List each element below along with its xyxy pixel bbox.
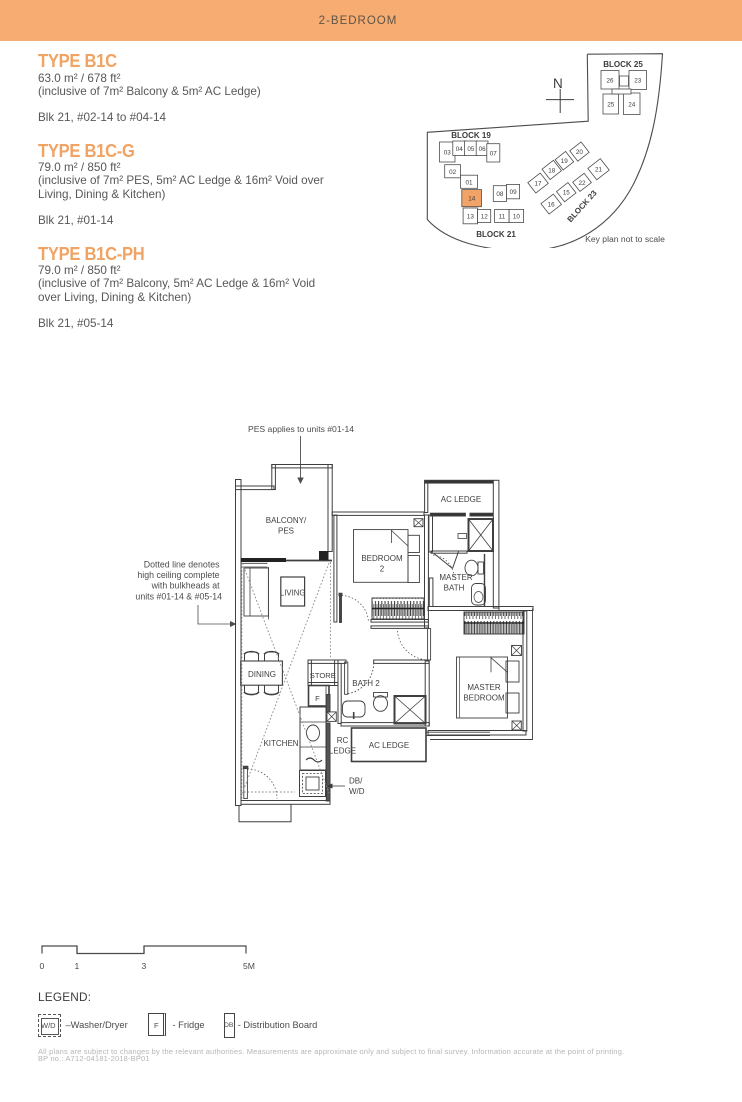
svg-text:AC LEDGE: AC LEDGE	[369, 741, 409, 750]
svg-text:01: 01	[465, 179, 473, 186]
svg-text:BEDROOM2: BEDROOM2	[361, 554, 403, 573]
svg-text:06: 06	[479, 146, 487, 153]
svg-text:DB/W/D: DB/W/D	[349, 777, 365, 797]
svg-text:07: 07	[490, 151, 498, 158]
svg-text:20: 20	[576, 149, 584, 156]
svg-text:3: 3	[142, 961, 147, 971]
svg-text:10: 10	[513, 213, 521, 220]
svg-text:03: 03	[444, 150, 452, 157]
svg-text:BLOCK 19: BLOCK 19	[451, 131, 491, 140]
svg-text:LIVING: LIVING	[280, 588, 306, 597]
svg-text:04: 04	[456, 146, 464, 153]
svg-text:09: 09	[510, 189, 518, 196]
svg-text:1: 1	[75, 961, 80, 971]
svg-text:N: N	[553, 76, 563, 91]
svg-text:MASTERBATH: MASTERBATH	[439, 573, 473, 592]
svg-text:17: 17	[534, 181, 542, 188]
svg-text:05: 05	[467, 146, 475, 153]
svg-text:11: 11	[499, 213, 506, 220]
svg-text:14: 14	[468, 196, 476, 203]
svg-text:23: 23	[634, 78, 642, 85]
svg-text:25: 25	[607, 102, 615, 109]
svg-text:24: 24	[628, 102, 636, 109]
svg-text:08: 08	[496, 191, 504, 198]
svg-text:BLOCK 21: BLOCK 21	[476, 230, 516, 239]
svg-text:F: F	[315, 694, 320, 703]
svg-text:15: 15	[563, 190, 571, 197]
svg-text:PES applies to units #01-14: PES applies to units #01-14	[248, 424, 354, 434]
svg-text:13: 13	[467, 213, 475, 220]
svg-text:26: 26	[606, 78, 614, 85]
svg-text:KITCHEN: KITCHEN	[263, 739, 298, 748]
svg-text:0: 0	[40, 961, 45, 971]
svg-text:AC LEDGE: AC LEDGE	[441, 495, 481, 504]
svg-text:Dotted line denotes high: Dotted line denotes high ceiling complet…	[135, 560, 222, 602]
svg-text:18: 18	[548, 168, 556, 175]
svg-text:Key plan not to scale: Key plan not to scale	[585, 234, 665, 244]
svg-text:22: 22	[578, 180, 586, 187]
svg-text:12: 12	[481, 213, 489, 220]
svg-text:21: 21	[595, 167, 603, 174]
svg-text:DINING: DINING	[248, 670, 276, 679]
svg-text:STORE: STORE	[310, 671, 336, 680]
svg-text:BALCONY/PES: BALCONY/PES	[266, 516, 307, 535]
svg-text:MASTERBEDROOM: MASTERBEDROOM	[463, 683, 505, 702]
svg-text:5M: 5M	[243, 961, 255, 971]
svg-text:02: 02	[449, 169, 457, 176]
svg-text:BATH 2: BATH 2	[352, 679, 380, 688]
svg-text:19: 19	[561, 158, 569, 165]
svg-text:BLOCK 25: BLOCK 25	[603, 60, 643, 69]
svg-text:16: 16	[548, 202, 556, 209]
